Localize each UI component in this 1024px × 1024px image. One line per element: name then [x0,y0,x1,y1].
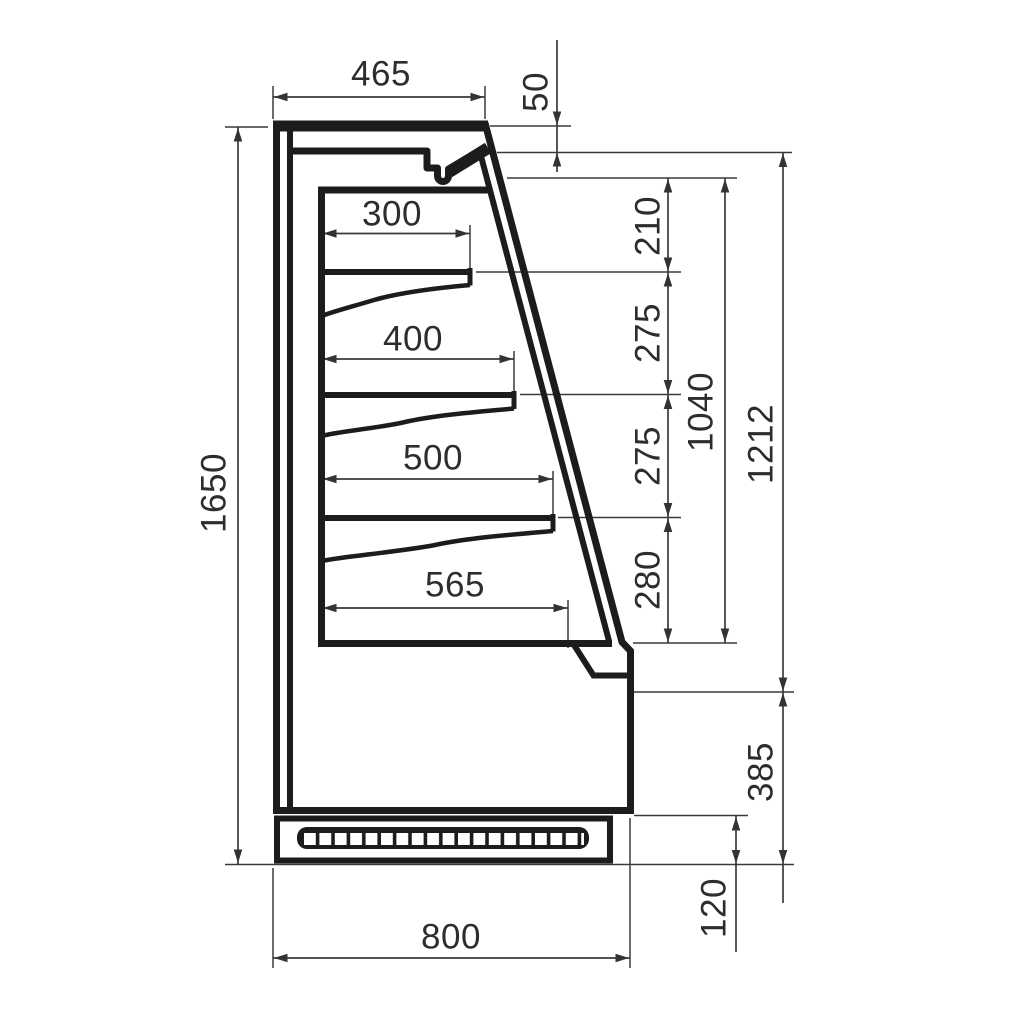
plinth [277,819,610,861]
shelf-1-bracket-curve [322,285,470,316]
dim-label-overall-depth: 800 [421,918,481,957]
dim-label-opening-height: 1040 [682,372,721,452]
dim-label-gap4: 280 [629,550,668,610]
front-glass-inner [482,158,610,641]
dim-label-gap3: 275 [629,426,668,486]
shelf-3 [322,514,553,561]
dim-label-gap2: 275 [629,303,668,363]
dim-label-shelf1-depth: 300 [362,195,422,234]
front-glass-outer [485,123,631,813]
dim-label-gap1: 210 [629,196,668,256]
ventilation-grille-slots [304,833,584,845]
cabinet-section-drawing: 465 50 300 400 500 565 210 275 275 280 1… [0,0,1024,1024]
shelf-1 [322,268,470,316]
shelf-2-bracket-curve [322,409,514,437]
dim-label-front-height: 1212 [742,404,781,484]
dim-top-depth [273,93,485,102]
dim-label-shelf3-depth: 500 [403,439,463,478]
dim-display-opening-height [721,178,730,643]
dim-label-deck-depth: 565 [425,566,485,605]
technical-drawing-page: 465 50 300 400 500 565 210 275 275 280 1… [0,0,1024,1024]
dim-label-shelf2-depth: 400 [383,320,443,359]
dim-label-canopy-height: 50 [517,72,556,112]
dim-label-plinth-height: 120 [695,878,734,938]
cabinet-outline [273,121,634,861]
shelf-3-bracket-curve [322,531,553,561]
front-bumper-notch [574,645,631,676]
dim-label-lower-front: 385 [742,742,781,802]
dim-overall-height [234,127,243,864]
dim-label-overall-height: 1650 [195,453,234,533]
shelf-2 [322,391,514,436]
dim-deck-depth [322,604,568,613]
dim-label-top-depth: 465 [351,55,411,94]
